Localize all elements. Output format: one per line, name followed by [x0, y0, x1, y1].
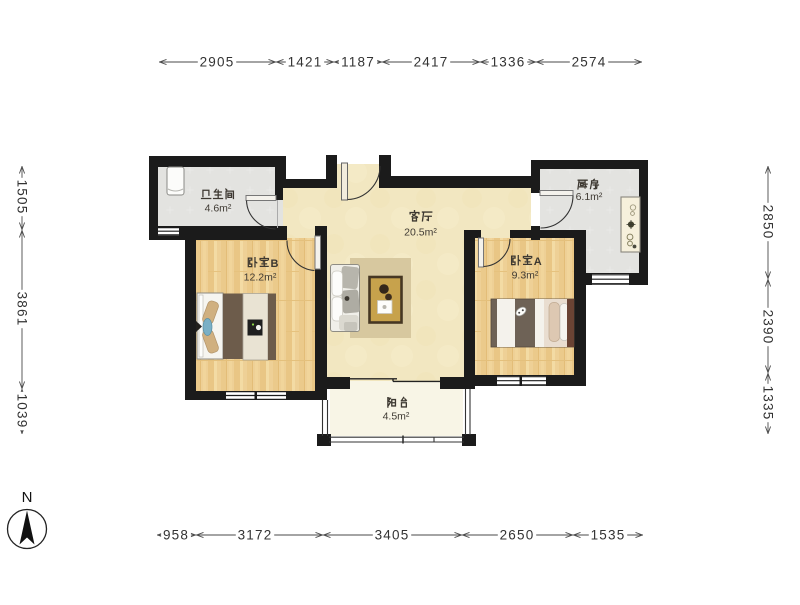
- svg-text:N: N: [22, 489, 33, 506]
- svg-text:B: B: [271, 258, 279, 270]
- svg-text:1336: 1336: [491, 55, 526, 70]
- svg-text:1187: 1187: [341, 55, 375, 70]
- svg-text:1421: 1421: [288, 55, 323, 70]
- svg-text:12.2m²: 12.2m²: [244, 272, 277, 284]
- svg-text:3405: 3405: [375, 528, 410, 543]
- svg-text:2850: 2850: [760, 205, 775, 240]
- svg-text:1335: 1335: [760, 386, 775, 421]
- svg-text:2390: 2390: [760, 310, 775, 345]
- svg-text:A: A: [534, 256, 542, 268]
- svg-text:1505: 1505: [14, 180, 29, 215]
- svg-text:4.5m²: 4.5m²: [383, 411, 410, 423]
- svg-text:3861: 3861: [14, 292, 29, 327]
- svg-text:3172: 3172: [238, 528, 273, 543]
- svg-text:6.1m²: 6.1m²: [576, 191, 603, 203]
- svg-text:1535: 1535: [591, 528, 626, 543]
- svg-text:2905: 2905: [200, 55, 235, 70]
- svg-text:4.6m²: 4.6m²: [205, 203, 232, 215]
- svg-text:1039: 1039: [14, 394, 29, 429]
- svg-text:20.5m²: 20.5m²: [404, 227, 437, 239]
- svg-text:958: 958: [163, 528, 189, 543]
- svg-text:2650: 2650: [500, 528, 535, 543]
- svg-text:9.3m²: 9.3m²: [512, 270, 539, 282]
- svg-text:2574: 2574: [572, 55, 607, 70]
- svg-text:2417: 2417: [414, 55, 449, 70]
